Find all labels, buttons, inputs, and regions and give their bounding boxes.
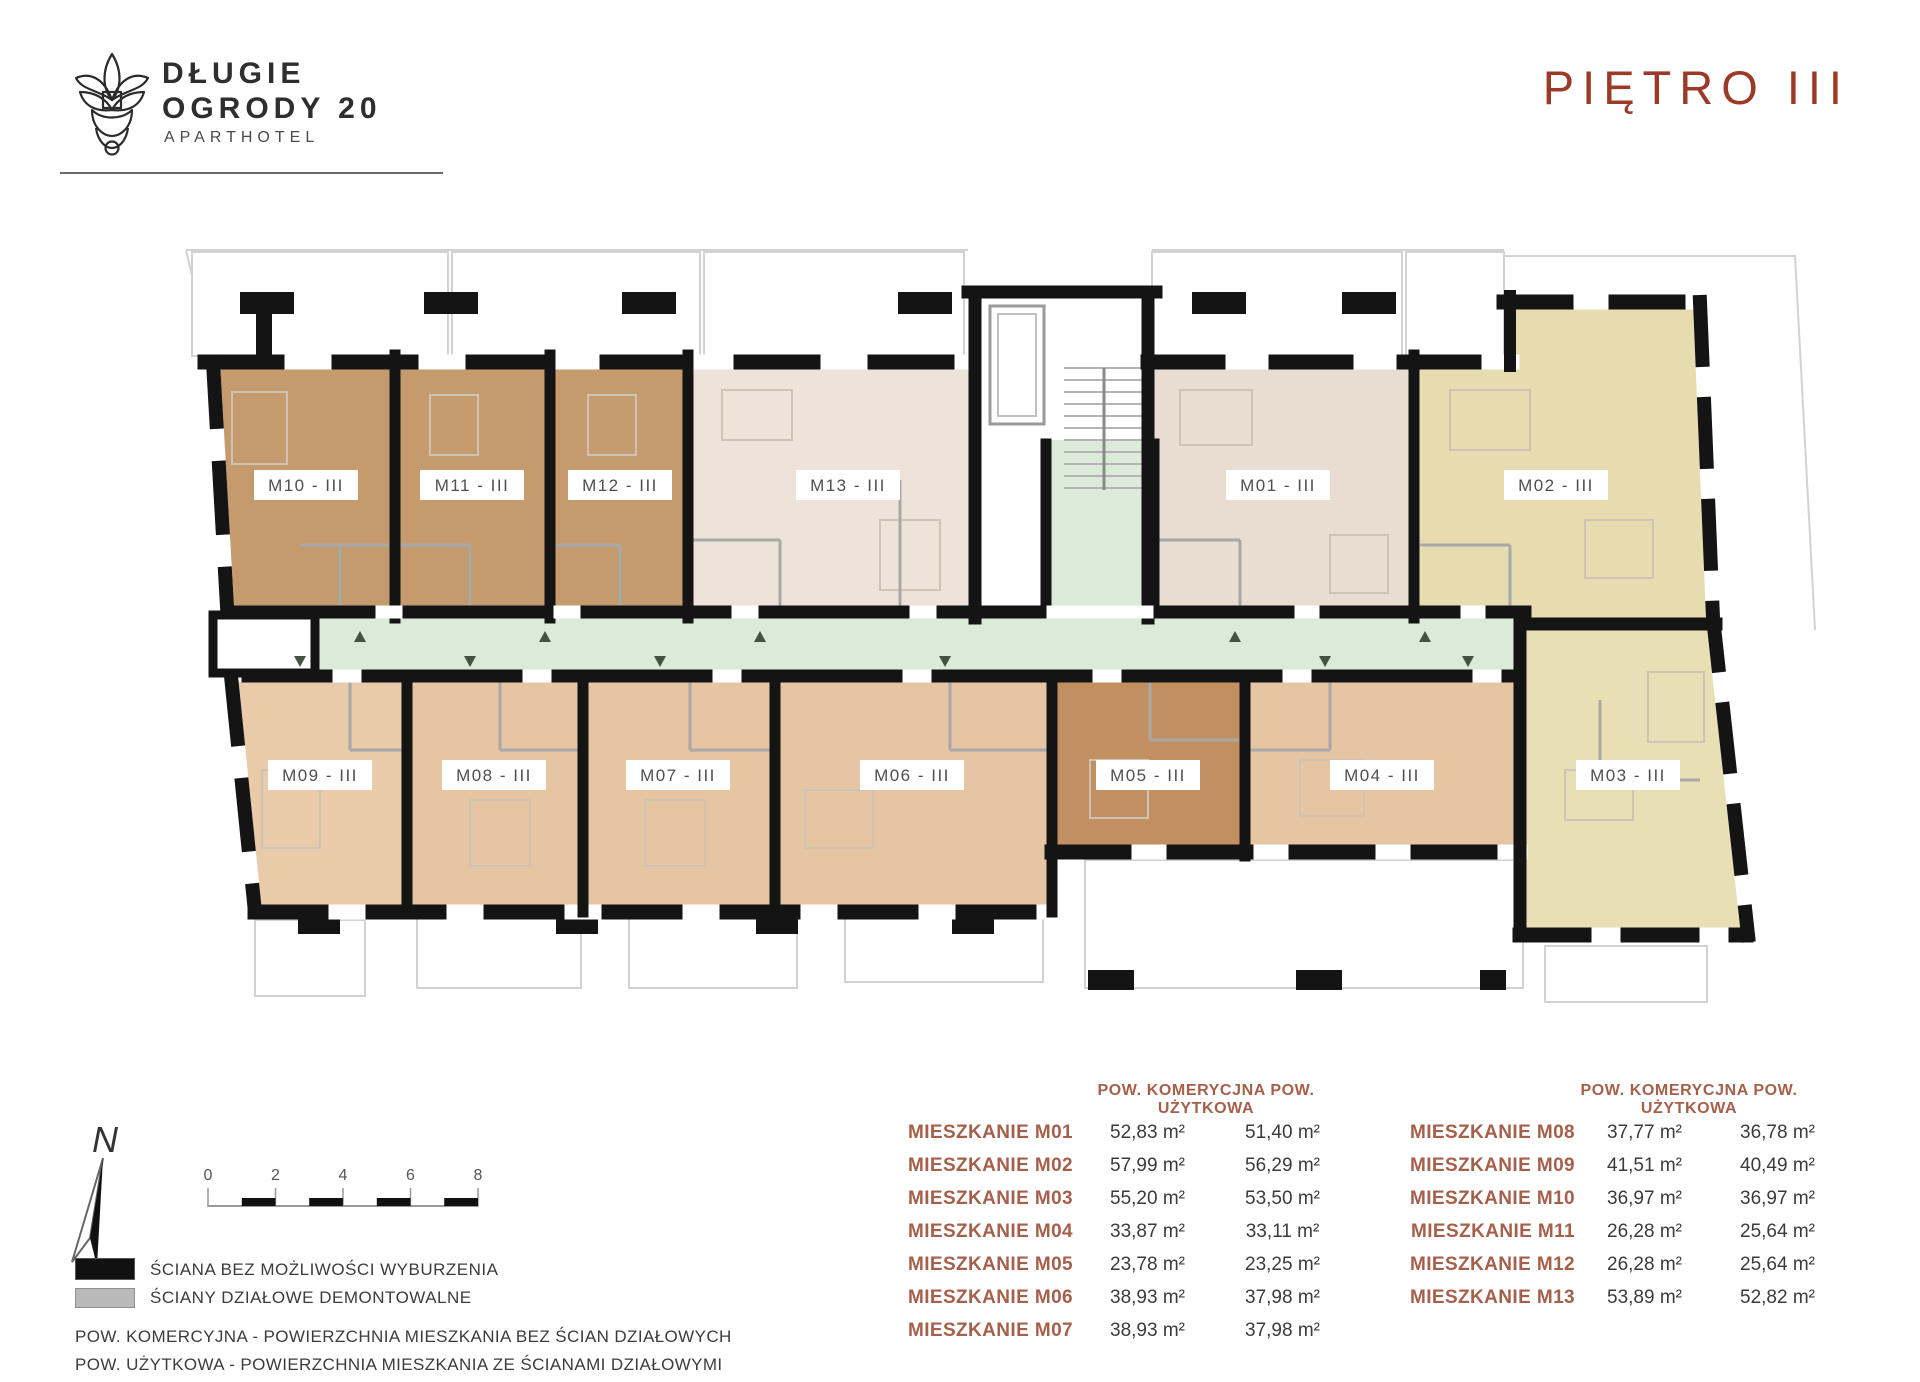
area-uzytkowa-value: 37,98 m² [1220, 1287, 1345, 1309]
apartment-name: MIESZKANIE M06 [895, 1287, 1073, 1309]
table-row: MIESZKANIE M0433,87 m²33,11 m² [895, 1215, 1345, 1248]
table-row: MIESZKANIE M1353,89 m²52,82 m² [1397, 1281, 1835, 1314]
apartment-M08-region[interactable] [407, 682, 583, 912]
apartment-label-M05[interactable]: M05 - III [1096, 760, 1200, 790]
area-uzytkowa-value: 36,97 m² [1720, 1188, 1835, 1210]
area-komercyjna-value: 38,93 m² [1085, 1320, 1210, 1342]
apartment-label-M11[interactable]: M11 - III [420, 470, 524, 500]
svg-text:8: 8 [474, 1167, 483, 1184]
apartment-label-M10[interactable]: M10 - III [254, 470, 358, 500]
table-row: MIESZKANIE M0152,83 m²51,40 m² [895, 1116, 1345, 1149]
apartment-M07-region[interactable] [583, 682, 775, 912]
apartment-name: MIESZKANIE M01 [895, 1122, 1073, 1144]
table-row: MIESZKANIE M1036,97 m²36,97 m² [1397, 1182, 1835, 1215]
apartment-name: MIESZKANIE M03 [895, 1188, 1073, 1210]
table-row: MIESZKANIE M0941,51 m²40,49 m² [1397, 1149, 1835, 1182]
area-komercyjna-value: 55,20 m² [1085, 1188, 1210, 1210]
apartment-name: MIESZKANIE M13 [1397, 1287, 1575, 1309]
legend-swatch-solid-wall [75, 1258, 135, 1280]
svg-text:M11 - III: M11 - III [435, 476, 510, 495]
apartment-label-M01[interactable]: M01 - III [1226, 470, 1330, 500]
legend-definition-uzytkowa: POW. UŻYTKOWA - POWIERZCHNIA MIESZKANIA … [75, 1355, 723, 1375]
area-uzytkowa-value: 37,98 m² [1220, 1320, 1345, 1342]
table-header-left: POW. KOMERYCJNA POW. UŻYTKOWA [1048, 1082, 1364, 1118]
area-uzytkowa-value: 51,40 m² [1220, 1122, 1345, 1144]
apartment-name: MIESZKANIE M09 [1397, 1155, 1575, 1177]
svg-text:M13 - III: M13 - III [810, 476, 886, 495]
north-label: N [92, 1119, 119, 1160]
table-row: MIESZKANIE M0257,99 m²56,29 m² [895, 1149, 1345, 1182]
svg-text:M07 - III: M07 - III [640, 766, 716, 785]
svg-text:M05 - III: M05 - III [1110, 766, 1186, 785]
area-uzytkowa-value: 52,82 m² [1720, 1287, 1835, 1309]
table-row: MIESZKANIE M0837,77 m²36,78 m² [1397, 1116, 1835, 1149]
svg-text:M04 - III: M04 - III [1344, 766, 1420, 785]
table-row: MIESZKANIE M0738,93 m²37,98 m² [895, 1314, 1345, 1347]
area-komercyjna-value: 33,87 m² [1085, 1221, 1210, 1243]
table-row: MIESZKANIE M0638,93 m²37,98 m² [895, 1281, 1345, 1314]
apartment-label-M08[interactable]: M08 - III [442, 760, 546, 790]
svg-text:0: 0 [204, 1167, 213, 1184]
apartment-name: MIESZKANIE M04 [895, 1221, 1073, 1243]
table-row: MIESZKANIE M0355,20 m²53,50 m² [895, 1182, 1345, 1215]
apartment-label-M09[interactable]: M09 - III [268, 760, 372, 790]
area-komercyjna-value: 57,99 m² [1085, 1155, 1210, 1177]
svg-text:4: 4 [339, 1167, 348, 1184]
area-komercyjna-value: 36,97 m² [1587, 1188, 1702, 1210]
area-komercyjna-value: 26,28 m² [1587, 1254, 1702, 1276]
apartment-label-M03[interactable]: M03 - III [1576, 760, 1680, 790]
apartment-label-M02[interactable]: M02 - III [1504, 470, 1608, 500]
apartment-name: MIESZKANIE M10 [1397, 1188, 1575, 1210]
apartment-name: MIESZKANIE M11 [1397, 1221, 1575, 1243]
apartment-M06-region[interactable] [775, 682, 1052, 912]
scale-bar: 0 2 4 6 8 [204, 1167, 483, 1207]
svg-text:M06 - III: M06 - III [874, 766, 950, 785]
apartment-name: MIESZKANIE M05 [895, 1254, 1073, 1276]
area-uzytkowa-value: 33,11 m² [1220, 1221, 1345, 1243]
area-komercyjna-value: 53,89 m² [1587, 1287, 1702, 1309]
svg-text:2: 2 [271, 1167, 280, 1184]
apartment-name: MIESZKANIE M02 [895, 1155, 1073, 1177]
area-uzytkowa-value: 56,29 m² [1220, 1155, 1345, 1177]
legend-definition-komercyjna: POW. KOMERCYJNA - POWIERZCHNIA MIESZKANI… [75, 1327, 732, 1347]
apartment-name: MIESZKANIE M08 [1397, 1122, 1575, 1144]
apartment-label-M04[interactable]: M04 - III [1330, 760, 1434, 790]
area-uzytkowa-value: 23,25 m² [1220, 1254, 1345, 1276]
table-row: MIESZKANIE M1226,28 m²25,64 m² [1397, 1248, 1835, 1281]
apartment-name: MIESZKANIE M07 [895, 1320, 1073, 1342]
svg-text:M01 - III: M01 - III [1240, 476, 1316, 495]
area-uzytkowa-value: 25,64 m² [1720, 1254, 1835, 1276]
area-uzytkowa-value: 36,78 m² [1720, 1122, 1835, 1144]
area-table-left: MIESZKANIE M0152,83 m²51,40 m²MIESZKANIE… [895, 1116, 1345, 1347]
legend-label-partition-wall: ŚCIANY DZIAŁOWE DEMONTOWALNE [150, 1288, 472, 1308]
apartment-name: MIESZKANIE M12 [1397, 1254, 1575, 1276]
area-uzytkowa-value: 25,64 m² [1720, 1221, 1835, 1243]
page: DŁUGIE OGRODY 20 APARTHOTEL PIĘTRO III [0, 0, 1920, 1382]
legend-swatch-partition-wall [75, 1288, 135, 1308]
area-komercyjna-value: 37,77 m² [1587, 1122, 1702, 1144]
svg-text:6: 6 [406, 1167, 415, 1184]
svg-text:M03 - III: M03 - III [1590, 766, 1666, 785]
area-komercyjna-value: 52,83 m² [1085, 1122, 1210, 1144]
area-komercyjna-value: 41,51 m² [1587, 1155, 1702, 1177]
area-komercyjna-value: 26,28 m² [1587, 1221, 1702, 1243]
table-header-right: POW. KOMERYCJNA POW. UŻYTKOWA [1548, 1082, 1830, 1118]
apartment-label-M07[interactable]: M07 - III [626, 760, 730, 790]
area-komercyjna-value: 38,93 m² [1085, 1287, 1210, 1309]
area-table-right: MIESZKANIE M0837,77 m²36,78 m²MIESZKANIE… [1397, 1116, 1835, 1314]
svg-text:M09 - III: M09 - III [282, 766, 358, 785]
area-komercyjna-value: 23,78 m² [1085, 1254, 1210, 1276]
svg-text:M12 - III: M12 - III [582, 476, 658, 495]
apartment-label-M13[interactable]: M13 - III [796, 470, 900, 500]
table-row: MIESZKANIE M0523,78 m²23,25 m² [895, 1248, 1345, 1281]
svg-text:M08 - III: M08 - III [456, 766, 532, 785]
apartment-label-M06[interactable]: M06 - III [860, 760, 964, 790]
area-uzytkowa-value: 40,49 m² [1720, 1155, 1835, 1177]
north-arrow-icon: N [72, 1119, 119, 1266]
legend-label-solid-wall: ŚCIANA BEZ MOŻLIWOŚCI WYBURZENIA [150, 1260, 498, 1280]
table-row: MIESZKANIE M1126,28 m²25,64 m² [1397, 1215, 1835, 1248]
apartment-label-M12[interactable]: M12 - III [568, 470, 672, 500]
area-uzytkowa-value: 53,50 m² [1220, 1188, 1345, 1210]
svg-text:M10 - III: M10 - III [268, 476, 344, 495]
svg-text:M02 - III: M02 - III [1518, 476, 1594, 495]
